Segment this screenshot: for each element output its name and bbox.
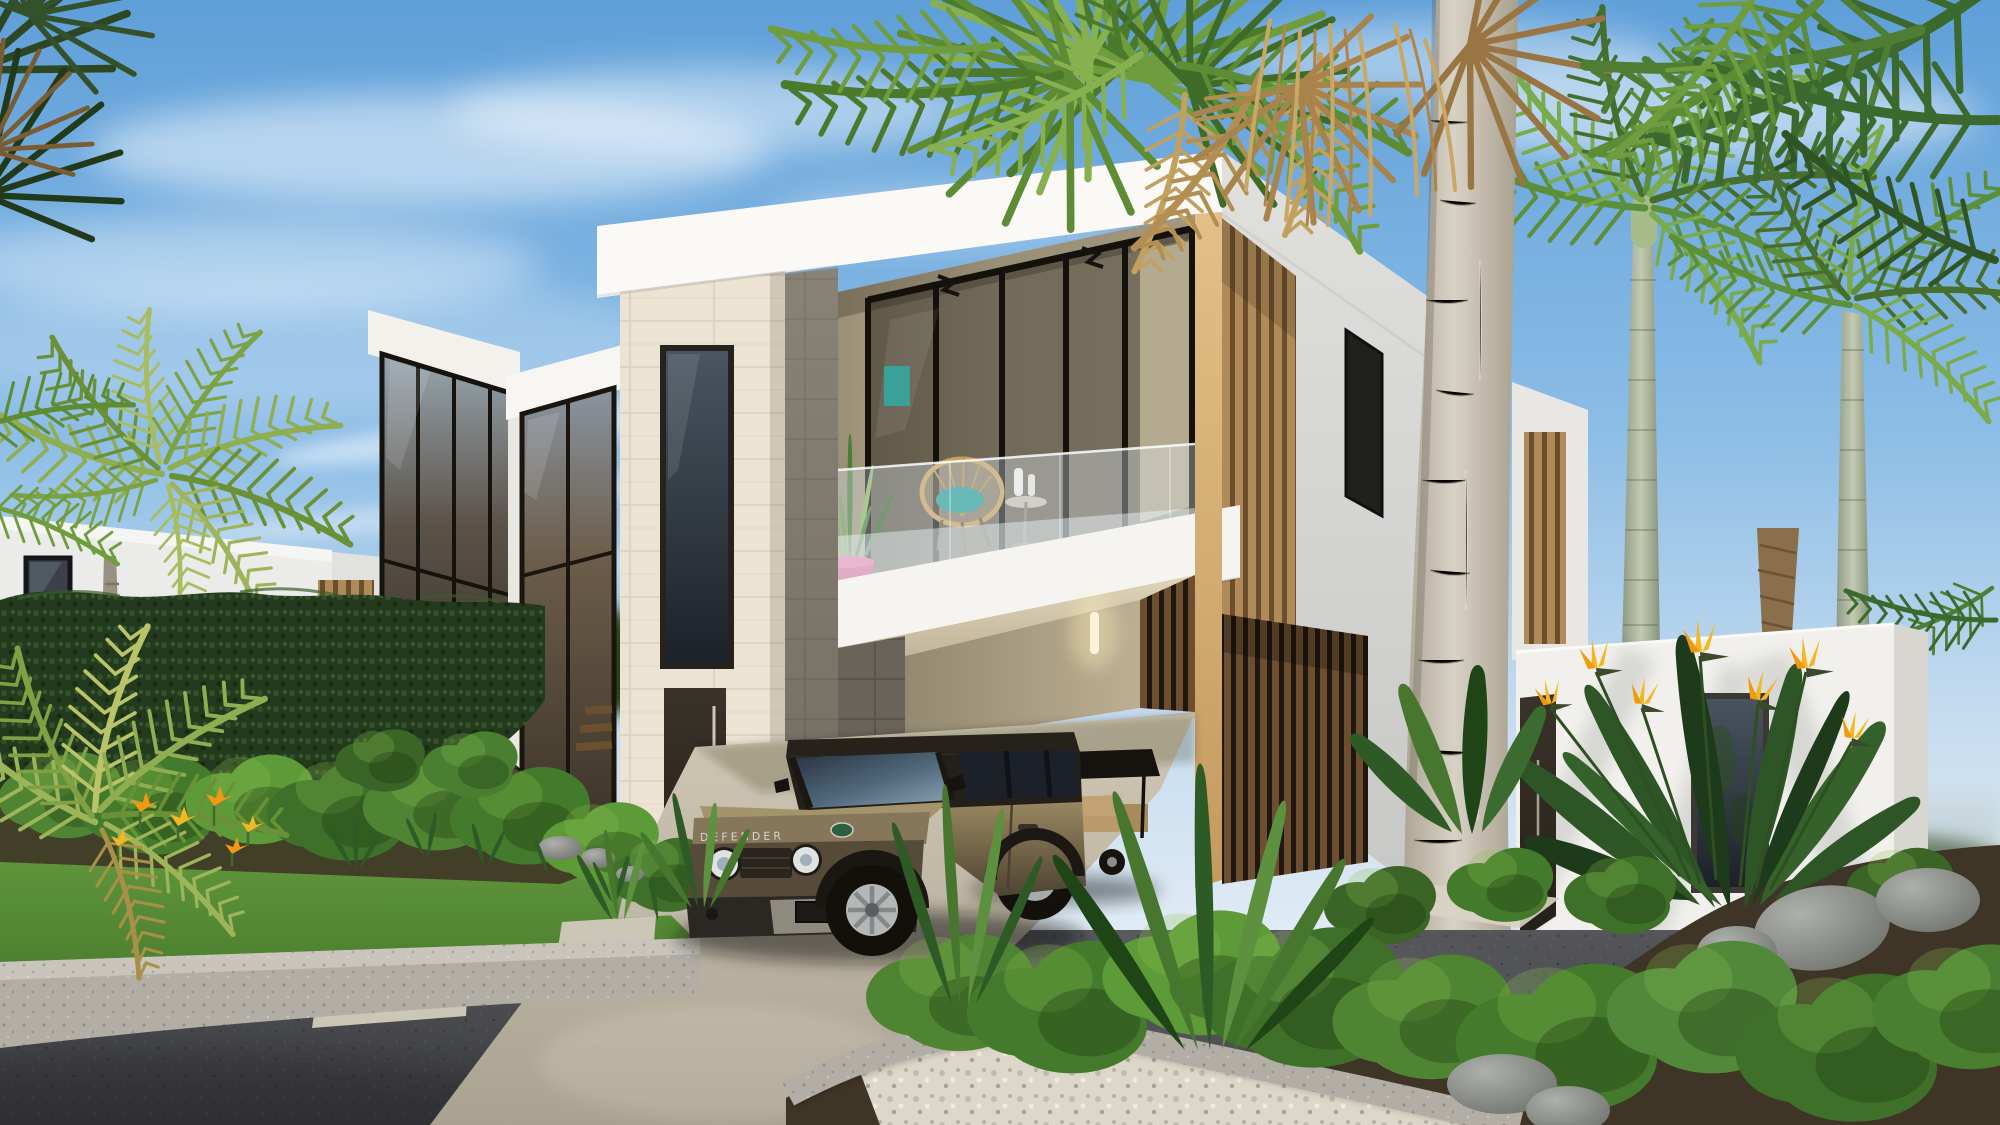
suv-windshield	[792, 752, 952, 808]
side-narrow-window	[1346, 330, 1382, 516]
stone-return-wall	[785, 268, 838, 748]
annex-wall	[1512, 382, 1588, 660]
wall-sconce	[1070, 594, 1118, 670]
architectural-render: DEFENDER	[0, 0, 2000, 1125]
suv-grille	[740, 848, 792, 878]
suv-side-glass	[958, 750, 1080, 800]
land-rover-badge-icon	[831, 823, 853, 837]
carport-side-screen	[1222, 614, 1368, 884]
